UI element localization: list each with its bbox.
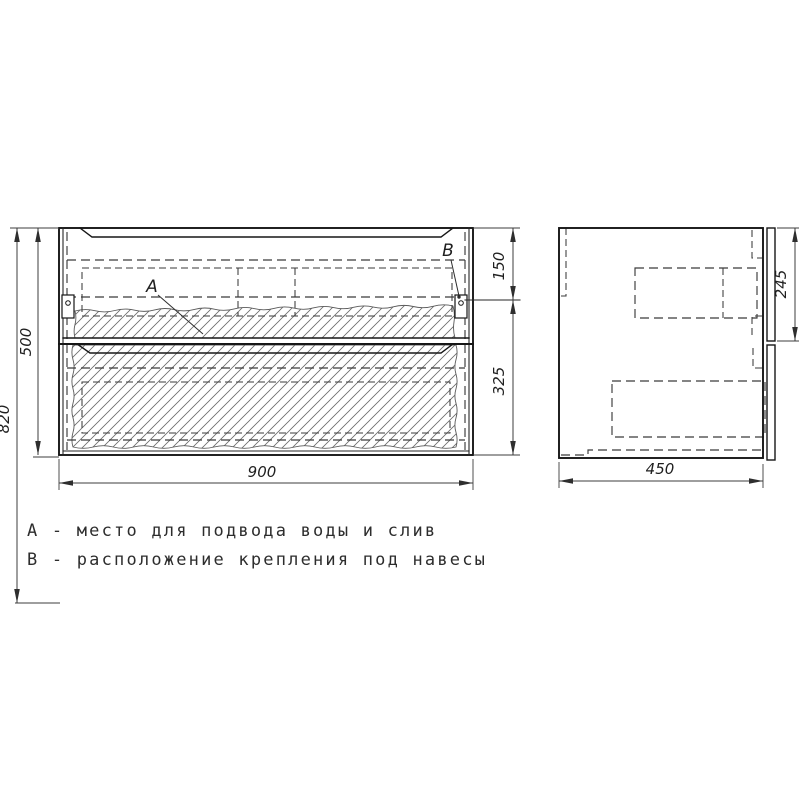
marker-b-label: B	[442, 241, 454, 261]
dim-label-500: 500	[17, 328, 35, 357]
legend-line-a: А - место для подвода воды и слив	[27, 521, 437, 541]
legend-line-b: В - расположение крепления под навесы	[27, 550, 487, 570]
marker-a-label: A	[145, 277, 158, 297]
dim-label-900: 900	[248, 463, 277, 481]
legend: А - место для подвода воды и слив В - ра…	[27, 521, 487, 570]
marker-b: B	[442, 241, 461, 299]
dim-label-325: 325	[490, 367, 508, 396]
side-view-outline	[559, 228, 775, 460]
technical-drawing-page: 820 500 900 150 325 450 245 A	[0, 0, 800, 799]
vanity-cabinet-drawing: 820 500 900 150 325 450 245 A	[0, 0, 800, 799]
dimension-450: 450	[559, 460, 763, 488]
dimension-500: 500	[17, 228, 59, 457]
side-view-hidden-lines	[559, 228, 765, 455]
dimension-325: 325	[473, 300, 520, 455]
dimension-900: 900	[59, 459, 473, 490]
front-view	[59, 228, 473, 455]
hatched-area-water-zone	[72, 305, 457, 448]
mount-bracket-left	[62, 295, 74, 318]
dim-label-150: 150	[490, 252, 508, 281]
dim-label-245: 245	[772, 270, 790, 299]
dim-label-450: 450	[646, 460, 675, 478]
mount-bracket-right	[455, 295, 467, 318]
side-view	[559, 228, 775, 460]
dimension-245: 245	[772, 228, 799, 341]
dim-label-820: 820	[0, 405, 13, 434]
dimension-820: 820	[0, 228, 60, 603]
